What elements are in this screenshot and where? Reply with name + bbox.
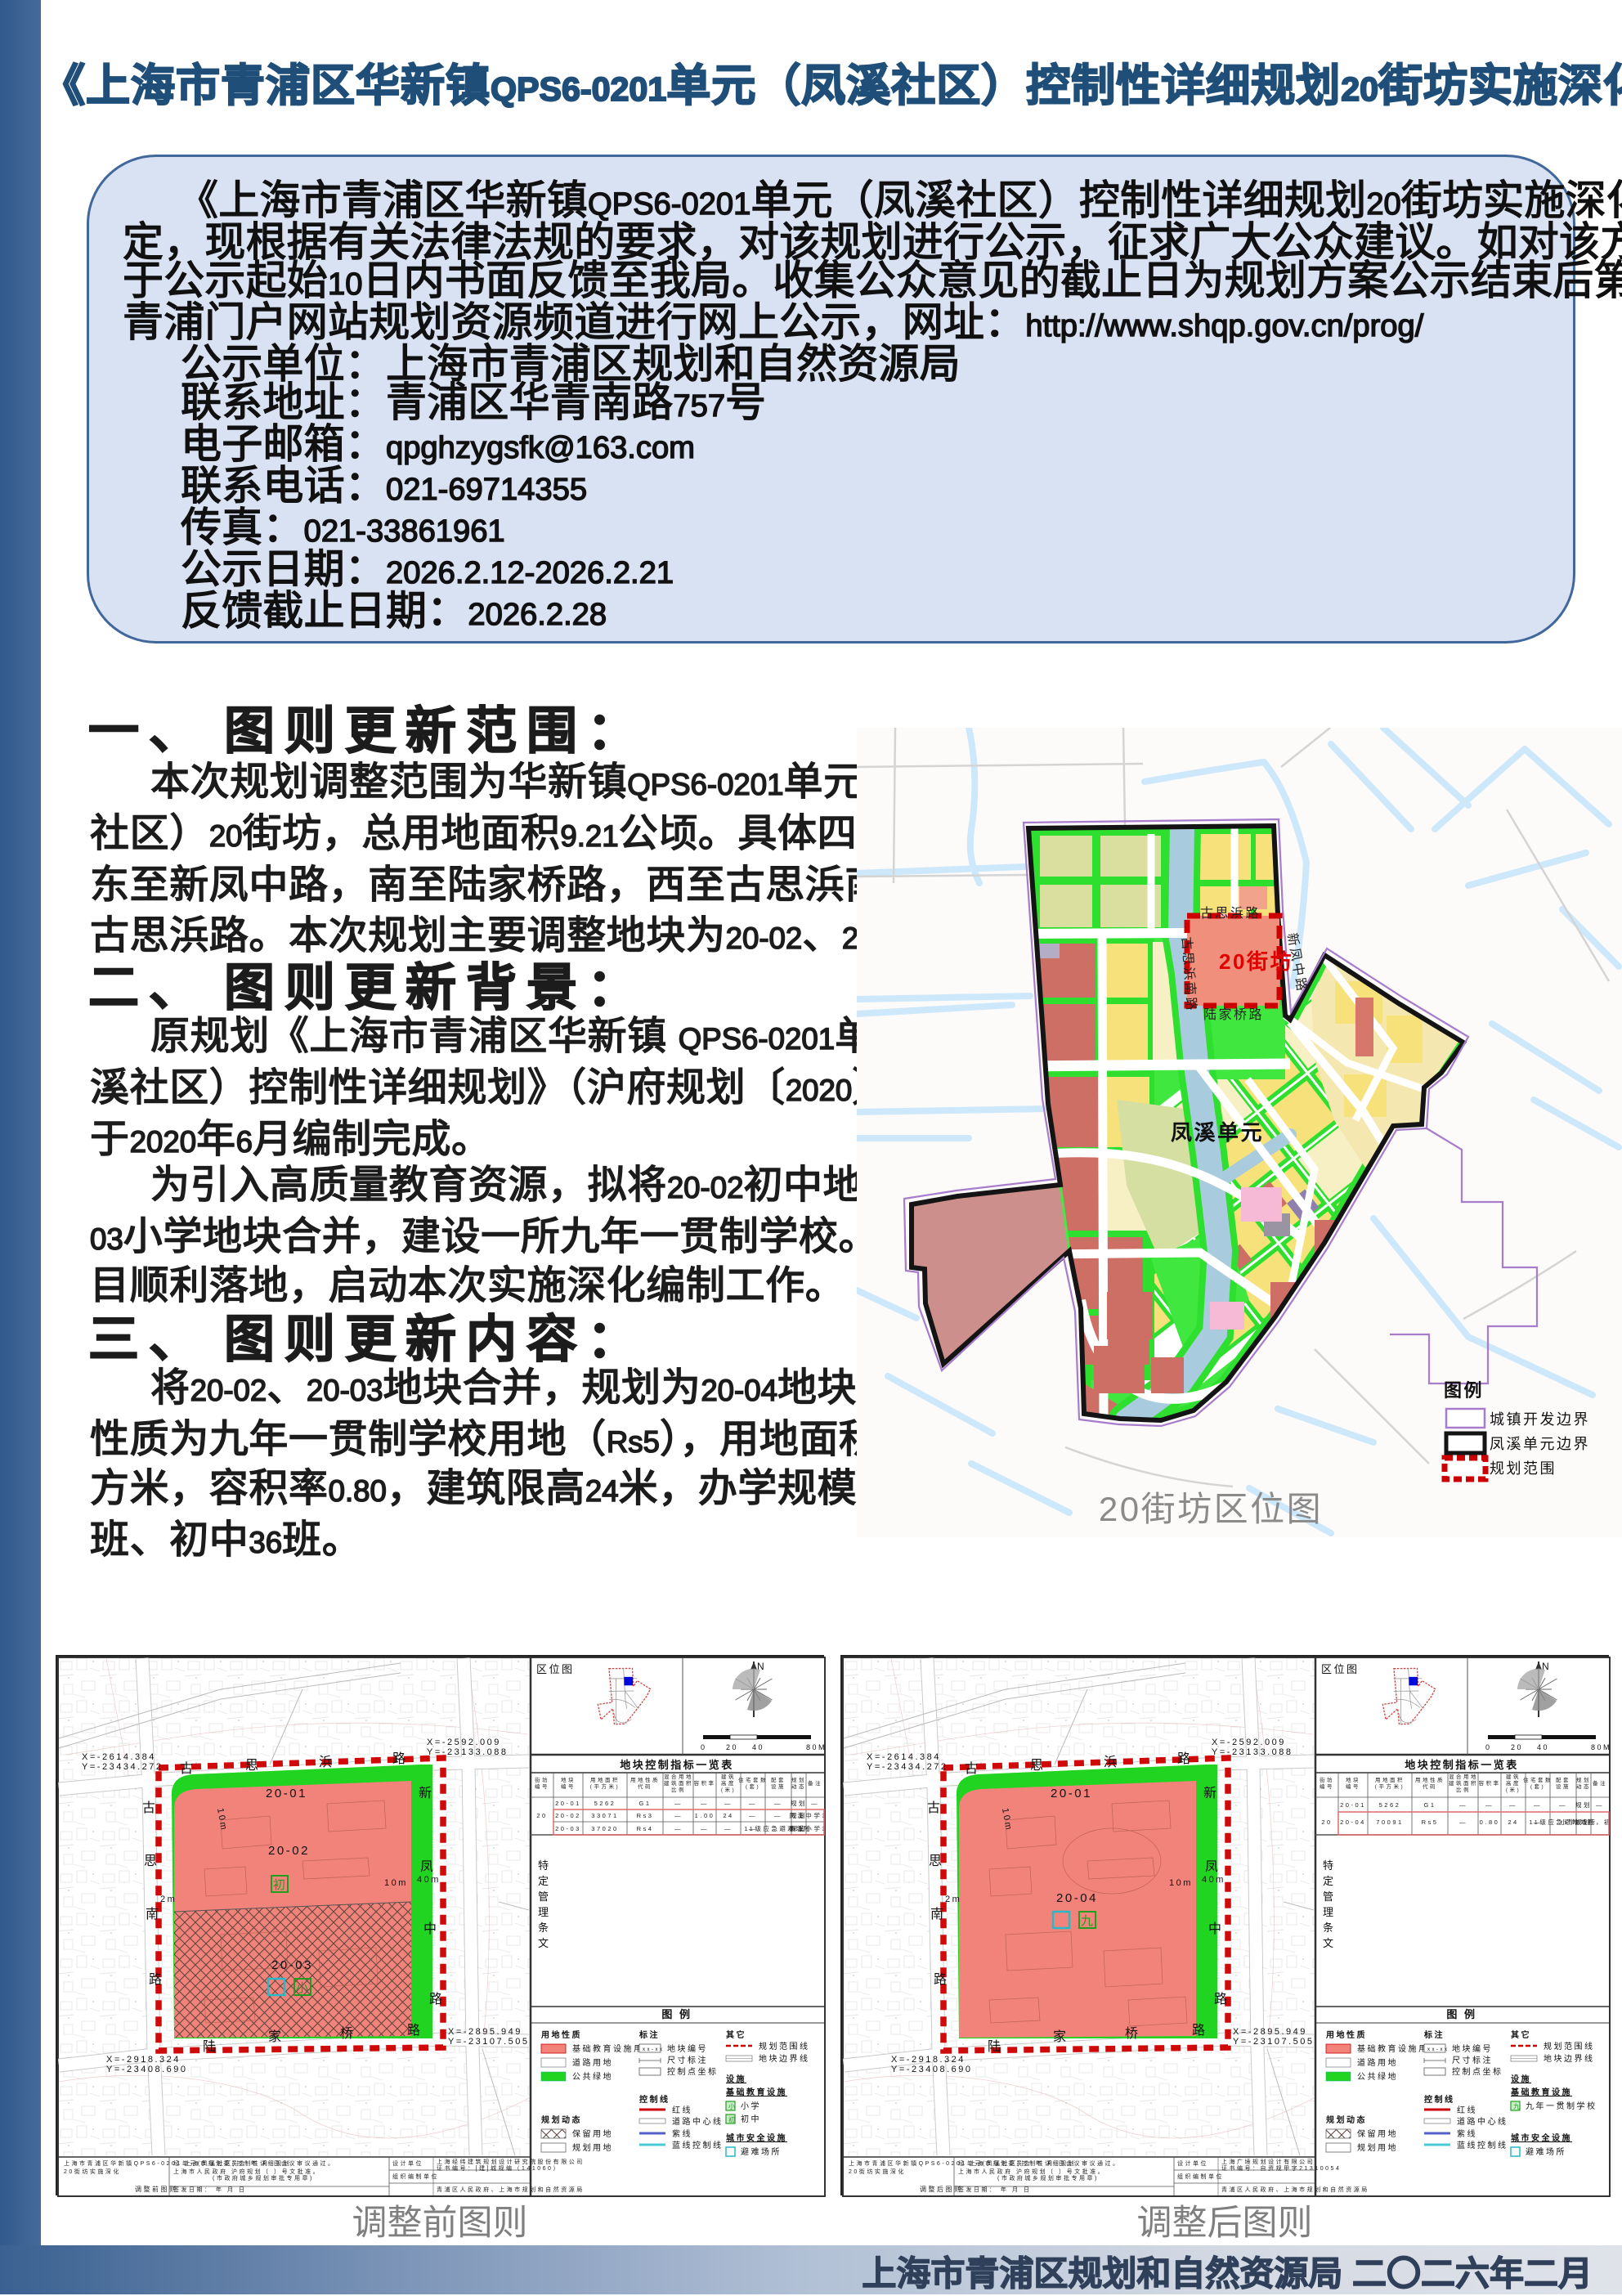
svg-text:5262: 5262 xyxy=(1379,1801,1401,1809)
svg-text:动态: 动态 xyxy=(1576,1783,1591,1790)
svg-text:Y=-23107.505: Y=-23107.505 xyxy=(448,2037,530,2047)
svg-text:区位图: 区位图 xyxy=(1321,1663,1360,1675)
svg-text:蓝线控制线: 蓝线控制线 xyxy=(1457,2140,1508,2150)
svg-text:24: 24 xyxy=(723,1812,733,1819)
svg-text:小学30班，初中36班: 小学30班，初中36班 xyxy=(1561,1818,1611,1826)
svg-text:思: 思 xyxy=(245,1758,261,1773)
svg-text:20: 20 xyxy=(1511,1743,1523,1751)
svg-text:道路中心线: 道路中心线 xyxy=(1457,2116,1508,2127)
svg-text:用地面积: 用地面积 xyxy=(590,1776,620,1783)
svg-text:定: 定 xyxy=(538,1875,551,1887)
svg-text:红线: 红线 xyxy=(1457,2105,1477,2115)
svg-text:古: 古 xyxy=(180,1761,195,1776)
svg-text:—: — xyxy=(774,1812,782,1819)
svg-text:陆: 陆 xyxy=(203,2039,218,2054)
svg-text:建筑: 建筑 xyxy=(1506,1773,1521,1780)
svg-text:调整后图则: 调整后图则 xyxy=(920,2185,963,2193)
svg-text:公共绿地: 公共绿地 xyxy=(1357,2071,1398,2082)
svg-text:蓝线控制线: 蓝线控制线 xyxy=(672,2140,724,2150)
svg-text:设计单位: 设计单位 xyxy=(1177,2159,1208,2167)
svg-text:xx-xx: xx-xx xyxy=(643,2047,665,2052)
svg-text:设施: 设施 xyxy=(726,2074,746,2084)
svg-text:—: — xyxy=(1559,1801,1567,1809)
svg-text:住宅套数: 住宅套数 xyxy=(1523,1776,1553,1783)
svg-text:(套): (套) xyxy=(746,1783,760,1790)
svg-text:用地性质: 用地性质 xyxy=(1415,1776,1445,1783)
svg-text:20街坊实施深化: 20街坊实施深化 xyxy=(849,2168,906,2175)
svg-text:路: 路 xyxy=(407,2023,423,2038)
svg-text:编号: 编号 xyxy=(561,1783,576,1790)
svg-text:证书编号：自资规甲字21310054: 证书编号：自资规甲字21310054 xyxy=(1221,2164,1341,2172)
svg-text:(市政府城乡规划审批专用章): (市政府城乡规划审批专用章) xyxy=(213,2174,314,2182)
svg-text:20-01: 20-01 xyxy=(1051,1787,1092,1800)
svg-text:紫线: 紫线 xyxy=(672,2128,692,2139)
svg-text:—: — xyxy=(1596,1801,1604,1809)
svg-text:道路中心线: 道路中心线 xyxy=(672,2116,724,2127)
svg-text:路: 路 xyxy=(149,1972,164,1987)
svg-text:(套): (套) xyxy=(1530,1783,1545,1790)
svg-text:X=-2895.949: X=-2895.949 xyxy=(1233,2027,1307,2037)
svg-text:城镇开发边界: 城镇开发边界 xyxy=(1490,1411,1590,1428)
svg-text:容积率: 容积率 xyxy=(1478,1779,1500,1787)
svg-text:其它: 其它 xyxy=(726,2029,746,2040)
svg-text:Y=-23434.272: Y=-23434.272 xyxy=(82,1762,164,1772)
svg-text:—: — xyxy=(674,1800,683,1807)
svg-text:浜: 浜 xyxy=(319,1755,334,1769)
svg-text:G1: G1 xyxy=(638,1800,651,1807)
svg-text:公共绿地: 公共绿地 xyxy=(572,2071,613,2082)
svg-text:古: 古 xyxy=(927,1800,943,1815)
svg-text:0.80: 0.80 xyxy=(1480,1818,1500,1826)
svg-text:调整前图则: 调整前图则 xyxy=(135,2185,178,2193)
svg-text:—: — xyxy=(1459,1818,1467,1826)
svg-text:—: — xyxy=(701,1800,709,1807)
svg-text:40: 40 xyxy=(1537,1743,1549,1751)
svg-text:Rs3: Rs3 xyxy=(637,1812,654,1819)
svg-text:比例: 比例 xyxy=(671,1786,686,1793)
svg-text:(平方米): (平方米) xyxy=(1375,1783,1405,1790)
svg-text:凤溪中学36班: 凤溪中学36班 xyxy=(789,1811,826,1819)
svg-text:凤溪小学30班: 凤溪小学30班 xyxy=(789,1824,826,1832)
svg-text:路: 路 xyxy=(934,1972,949,1987)
svg-text:用地面积: 用地面积 xyxy=(1375,1776,1405,1783)
svg-text:规划范围线: 规划范围线 xyxy=(759,2041,810,2052)
svg-text:X=-2614.384: X=-2614.384 xyxy=(867,1752,941,1762)
svg-text:代码: 代码 xyxy=(638,1783,652,1790)
svg-text:(市政府城乡规划审批专用章): (市政府城乡规划审批专用章) xyxy=(997,2174,1099,2182)
svg-text:用地性质: 用地性质 xyxy=(540,2029,582,2040)
svg-text:青浦区人民政府、上海市规划和自然资源局: 青浦区人民政府、上海市规划和自然资源局 xyxy=(437,2186,585,2193)
svg-text:新: 新 xyxy=(1203,1786,1219,1800)
svg-text:20-02: 20-02 xyxy=(268,1844,310,1858)
svg-text:(平方米): (平方米) xyxy=(590,1783,620,1790)
svg-text:高度: 高度 xyxy=(721,1779,736,1787)
svg-text:20-03: 20-03 xyxy=(271,1958,313,1972)
svg-text:道路用地: 道路用地 xyxy=(572,2057,613,2068)
svg-text:凤: 凤 xyxy=(1205,1860,1221,1874)
svg-text:5262: 5262 xyxy=(594,1800,616,1807)
svg-text:九年一贯制学校: 九年一贯制学校 xyxy=(1526,2101,1597,2111)
svg-text:小: 小 xyxy=(728,2103,737,2110)
svg-text:xx-xx: xx-xx xyxy=(1427,2047,1449,2052)
svg-text:陆家桥路: 陆家桥路 xyxy=(1203,1007,1264,1022)
svg-text:浜: 浜 xyxy=(1104,1755,1119,1769)
svg-text:地块控制指标一览表: 地块控制指标一览表 xyxy=(620,1759,734,1771)
svg-text:经 上海市规划委员会 年 月 日会议审议通过: 经 上海市规划委员会 年 月 日会议审议通过。 xyxy=(958,2159,1121,2167)
svg-text:20: 20 xyxy=(726,1743,738,1751)
svg-text:配套: 配套 xyxy=(771,1776,786,1783)
svg-text:80M: 80M xyxy=(1591,1743,1611,1751)
svg-text:控制点坐标: 控制点坐标 xyxy=(1452,2066,1503,2077)
svg-text:比例: 比例 xyxy=(1456,1786,1471,1793)
svg-text:特: 特 xyxy=(1323,1859,1336,1872)
svg-text:设施: 设施 xyxy=(1511,2074,1531,2084)
svg-text:小学: 小学 xyxy=(741,2101,761,2111)
svg-text:尺寸标注: 尺寸标注 xyxy=(1452,2055,1493,2065)
svg-text:道路用地: 道路用地 xyxy=(1357,2057,1398,2068)
svg-text:紫线: 紫线 xyxy=(1457,2128,1477,2139)
svg-text:九: 九 xyxy=(1081,1914,1096,1928)
svg-text:图例: 图例 xyxy=(1444,1380,1484,1401)
svg-text:路: 路 xyxy=(392,1751,408,1766)
svg-text:定: 定 xyxy=(1323,1875,1336,1887)
svg-text:街坊: 街坊 xyxy=(1320,1776,1334,1783)
svg-text:证书编号：[建]城规编（141060）: 证书编号：[建]城规编（141060） xyxy=(437,2164,561,2172)
svg-text:规划: 规划 xyxy=(791,1799,807,1807)
svg-text:X=-2592.009: X=-2592.009 xyxy=(1212,1738,1286,1747)
svg-text:规划用地: 规划用地 xyxy=(572,2142,613,2153)
svg-text:10m: 10m xyxy=(384,1878,408,1888)
svg-text:红线: 红线 xyxy=(672,2105,692,2115)
svg-text:地块: 地块 xyxy=(1346,1776,1360,1783)
svg-text:图 例: 图 例 xyxy=(661,2008,692,2020)
svg-text:X=-2592.009: X=-2592.009 xyxy=(427,1738,501,1747)
svg-text:20街坊实施深化: 20街坊实施深化 xyxy=(64,2168,121,2175)
svg-text:初: 初 xyxy=(728,2115,737,2123)
svg-text:桥: 桥 xyxy=(1125,2026,1140,2041)
svg-text:0: 0 xyxy=(1485,1743,1492,1751)
svg-text:24: 24 xyxy=(1508,1818,1518,1826)
svg-text:Y=-23408.690: Y=-23408.690 xyxy=(891,2065,973,2074)
svg-text:(米): (米) xyxy=(1506,1786,1521,1793)
svg-text:城市安全设施: 城市安全设施 xyxy=(1511,2132,1572,2143)
svg-text:凤溪单元边界: 凤溪单元边界 xyxy=(1490,1436,1590,1452)
svg-text:20-04: 20-04 xyxy=(1056,1891,1098,1905)
svg-text:设计单位: 设计单位 xyxy=(392,2159,423,2167)
svg-text:条: 条 xyxy=(1323,1922,1336,1934)
svg-text:特: 特 xyxy=(538,1859,551,1872)
svg-text:40m: 40m xyxy=(417,1875,441,1885)
svg-text:管: 管 xyxy=(538,1890,551,1903)
svg-text:(米): (米) xyxy=(721,1786,736,1793)
svg-text:思: 思 xyxy=(144,1854,159,1868)
svg-text:城市安全设施: 城市安全设施 xyxy=(726,2132,787,2143)
svg-text:签发日期： 年 月 日: 签发日期： 年 月 日 xyxy=(173,2186,246,2193)
svg-text:Rs4: Rs4 xyxy=(637,1825,654,1832)
svg-text:20-04: 20-04 xyxy=(1340,1818,1366,1826)
svg-text:古: 古 xyxy=(965,1761,980,1776)
svg-text:Y=-23133.088: Y=-23133.088 xyxy=(427,1747,509,1757)
svg-text:混合用地: 混合用地 xyxy=(664,1773,693,1780)
svg-text:建筑面积: 建筑面积 xyxy=(1449,1779,1478,1787)
svg-text:思: 思 xyxy=(929,1854,944,1868)
svg-text:文: 文 xyxy=(538,1937,551,1949)
svg-text:33071: 33071 xyxy=(591,1812,618,1819)
svg-text:—: — xyxy=(674,1812,683,1819)
svg-text:地块: 地块 xyxy=(561,1776,576,1783)
svg-text:路: 路 xyxy=(429,1992,445,2007)
svg-text:地块边界线: 地块边界线 xyxy=(759,2053,810,2064)
svg-text:文: 文 xyxy=(1323,1937,1336,1949)
svg-text:规划动态: 规划动态 xyxy=(541,2114,582,2125)
svg-text:混合用地: 混合用地 xyxy=(1449,1773,1478,1780)
svg-text:基础教育设施: 基础教育设施 xyxy=(725,2087,787,2097)
svg-text:—: — xyxy=(724,1825,733,1832)
svg-text:Y=-23434.272: Y=-23434.272 xyxy=(867,1762,948,1772)
svg-text:路: 路 xyxy=(1192,2023,1208,2038)
svg-text:九: 九 xyxy=(1513,2103,1522,2110)
svg-text:X=-2614.384: X=-2614.384 xyxy=(82,1752,156,1762)
svg-text:37020: 37020 xyxy=(591,1825,618,1832)
svg-text:理: 理 xyxy=(1323,1906,1336,1918)
svg-text:20-01: 20-01 xyxy=(266,1787,307,1800)
svg-text:编号: 编号 xyxy=(1346,1783,1360,1790)
svg-text:控制线: 控制线 xyxy=(639,2094,670,2105)
svg-text:组织编制单位: 组织编制单位 xyxy=(392,2173,439,2180)
svg-text:备注: 备注 xyxy=(1593,1779,1607,1787)
svg-text:地块编号: 地块编号 xyxy=(667,2043,708,2054)
svg-text:中: 中 xyxy=(423,1922,439,1936)
svg-text:地块编号: 地块编号 xyxy=(1452,2043,1493,2054)
svg-text:南: 南 xyxy=(146,1907,161,1922)
svg-text:Y=-23107.505: Y=-23107.505 xyxy=(1233,2037,1315,2047)
svg-text:70091: 70091 xyxy=(1376,1818,1403,1826)
svg-text:1.00: 1.00 xyxy=(695,1812,715,1819)
svg-text:—: — xyxy=(1459,1801,1467,1809)
svg-text:图 例: 图 例 xyxy=(1446,2008,1476,2020)
svg-text:保留用地: 保留用地 xyxy=(1357,2128,1398,2139)
svg-text:签发日期： 年 月 日: 签发日期： 年 月 日 xyxy=(958,2186,1031,2193)
svg-text:规划: 规划 xyxy=(1575,1800,1592,1809)
svg-text:20-01: 20-01 xyxy=(1340,1801,1366,1809)
svg-text:凤溪单元: 凤溪单元 xyxy=(1171,1120,1264,1145)
svg-text:20-03: 20-03 xyxy=(555,1825,581,1832)
svg-text:路: 路 xyxy=(1177,1751,1193,1766)
svg-text:代码: 代码 xyxy=(1423,1783,1437,1790)
svg-text:—: — xyxy=(1509,1801,1517,1809)
svg-text:家: 家 xyxy=(268,2029,284,2044)
svg-text:设施: 设施 xyxy=(771,1783,786,1790)
svg-text:陆: 陆 xyxy=(988,2039,1003,2054)
svg-text:40: 40 xyxy=(752,1743,764,1751)
svg-text:Y=-23408.690: Y=-23408.690 xyxy=(106,2065,188,2074)
svg-text:家: 家 xyxy=(1053,2029,1069,2044)
svg-text:规划范围: 规划范围 xyxy=(1490,1460,1557,1477)
svg-text:古: 古 xyxy=(142,1800,158,1815)
svg-text:20-02: 20-02 xyxy=(555,1812,581,1819)
svg-text:—: — xyxy=(674,1825,683,1832)
svg-text:地块控制指标一览表: 地块控制指标一览表 xyxy=(1405,1759,1519,1771)
svg-text:上海广境规划设计有限公司: 上海广境规划设计有限公司 xyxy=(1221,2158,1315,2165)
svg-text:标注: 标注 xyxy=(638,2029,660,2040)
svg-text:编号: 编号 xyxy=(535,1783,549,1790)
svg-text:10m: 10m xyxy=(1169,1878,1193,1888)
svg-text:20-01: 20-01 xyxy=(555,1800,581,1807)
svg-text:—: — xyxy=(749,1812,757,1819)
svg-text:建筑面积: 建筑面积 xyxy=(664,1779,693,1787)
svg-text:地块边界线: 地块边界线 xyxy=(1544,2053,1595,2064)
svg-text:尺寸标注: 尺寸标注 xyxy=(667,2055,708,2065)
svg-text:20街坊区位图: 20街坊区位图 xyxy=(1099,1490,1323,1528)
svg-text:青浦区人民政府、上海市规划和自然资源局: 青浦区人民政府、上海市规划和自然资源局 xyxy=(1221,2186,1369,2193)
svg-text:40m: 40m xyxy=(1202,1875,1225,1885)
svg-text:—: — xyxy=(701,1825,709,1832)
svg-text:其它: 其它 xyxy=(1511,2029,1531,2040)
svg-text:条: 条 xyxy=(538,1922,551,1934)
svg-text:控制线: 控制线 xyxy=(1424,2094,1455,2105)
svg-text:X=-2918.324: X=-2918.324 xyxy=(106,2055,181,2065)
svg-text:—: — xyxy=(749,1800,757,1807)
svg-text:避难场所: 避难场所 xyxy=(1526,2146,1566,2157)
svg-text:凤: 凤 xyxy=(420,1860,436,1874)
svg-text:中: 中 xyxy=(1208,1922,1224,1936)
svg-text:小: 小 xyxy=(296,1981,311,1995)
svg-text:2m: 2m xyxy=(160,1895,177,1904)
svg-text:初中: 初中 xyxy=(741,2114,761,2124)
svg-text:容积率: 容积率 xyxy=(693,1779,715,1787)
svg-text:街坊: 街坊 xyxy=(535,1776,549,1783)
svg-text:古思浜路: 古思浜路 xyxy=(1200,906,1261,921)
svg-text:—: — xyxy=(1534,1801,1542,1809)
svg-text:桥: 桥 xyxy=(340,2026,356,2041)
svg-text:规划动态: 规划动态 xyxy=(1326,2114,1367,2125)
svg-text:标注: 标注 xyxy=(1423,2029,1445,2040)
svg-text:保留用地: 保留用地 xyxy=(572,2128,613,2139)
svg-text:理: 理 xyxy=(538,1906,551,1918)
svg-text:0: 0 xyxy=(701,1743,707,1751)
svg-text:X=-2895.949: X=-2895.949 xyxy=(448,2027,522,2037)
svg-text:上海经纬建筑规划设计研究院股份有限公司: 上海经纬建筑规划设计研究院股份有限公司 xyxy=(437,2158,585,2165)
svg-text:20: 20 xyxy=(536,1812,547,1819)
svg-text:控制点坐标: 控制点坐标 xyxy=(667,2066,719,2077)
svg-text:高度: 高度 xyxy=(1506,1779,1521,1787)
svg-text:路: 路 xyxy=(1214,1992,1230,2007)
svg-text:住宅套数: 住宅套数 xyxy=(738,1776,768,1783)
svg-text:配套: 配套 xyxy=(1556,1776,1570,1783)
svg-text:区位图: 区位图 xyxy=(536,1663,575,1675)
svg-text:—: — xyxy=(774,1800,782,1807)
svg-text:G1: G1 xyxy=(1423,1801,1436,1809)
svg-text:基础教育设施: 基础教育设施 xyxy=(1510,2087,1572,2097)
svg-text:新: 新 xyxy=(419,1786,434,1800)
svg-text:设施: 设施 xyxy=(1556,1783,1570,1790)
svg-text:编号: 编号 xyxy=(1320,1783,1334,1790)
svg-text:上海市人民政府 沪府规划〔 〕号文批准。: 上海市人民政府 沪府规划〔 〕号文批准。 xyxy=(173,2168,320,2175)
svg-text:用地性质: 用地性质 xyxy=(1325,2029,1367,2040)
svg-text:80M: 80M xyxy=(806,1743,826,1751)
svg-text:建筑: 建筑 xyxy=(721,1773,736,1780)
svg-text:2m: 2m xyxy=(945,1895,961,1904)
svg-text:Rs5: Rs5 xyxy=(1422,1818,1439,1826)
svg-text:规划: 规划 xyxy=(791,1776,806,1783)
svg-text:20: 20 xyxy=(1321,1818,1332,1826)
svg-text:动态: 动态 xyxy=(791,1783,806,1790)
svg-text:规划范围线: 规划范围线 xyxy=(1544,2041,1595,2052)
svg-text:上海市人民政府 沪府规划〔 〕号文批准。: 上海市人民政府 沪府规划〔 〕号文批准。 xyxy=(958,2168,1105,2175)
svg-text:组织编制单位: 组织编制单位 xyxy=(1177,2173,1224,2180)
svg-text:备注: 备注 xyxy=(808,1779,822,1787)
svg-text:—: — xyxy=(1485,1801,1494,1809)
svg-text:Y=-23133.088: Y=-23133.088 xyxy=(1212,1747,1293,1757)
svg-text:南: 南 xyxy=(930,1907,946,1922)
svg-text:思: 思 xyxy=(1030,1758,1046,1773)
svg-text:—: — xyxy=(811,1800,819,1807)
svg-text:初: 初 xyxy=(273,1878,288,1892)
svg-text:规划: 规划 xyxy=(1576,1776,1591,1783)
svg-text:—: — xyxy=(724,1800,733,1807)
svg-text:20街坊: 20街坊 xyxy=(1219,949,1293,974)
svg-text:用地性质: 用地性质 xyxy=(630,1776,660,1783)
svg-text:X=-2918.324: X=-2918.324 xyxy=(891,2055,966,2065)
svg-text:经 上海市规划委员会 年 月 日会议审议通过: 经 上海市规划委员会 年 月 日会议审议通过。 xyxy=(173,2159,336,2167)
svg-text:避难场所: 避难场所 xyxy=(741,2146,782,2157)
svg-text:规划用地: 规划用地 xyxy=(1357,2142,1398,2153)
svg-text:管: 管 xyxy=(1323,1890,1336,1903)
